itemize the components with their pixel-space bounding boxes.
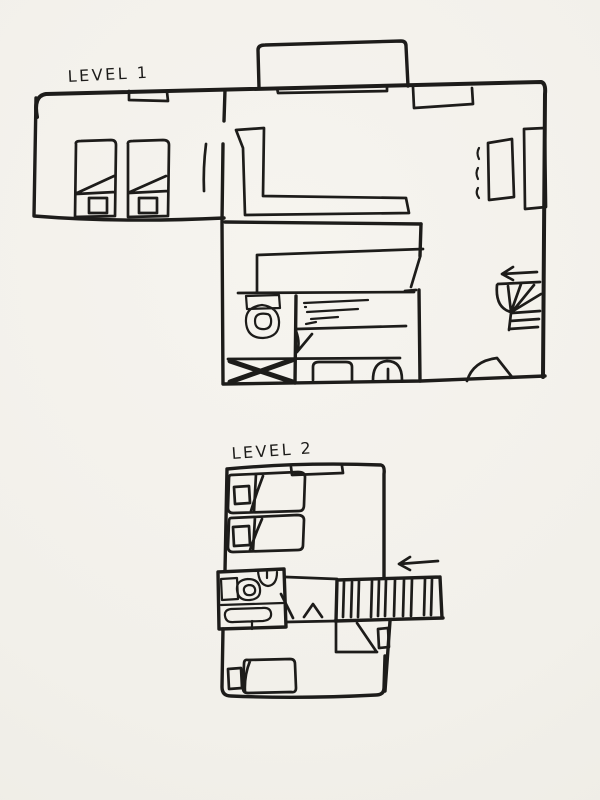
sketch-canvas: LEVEL 1	[0, 0, 600, 800]
stove-vent-lines	[304, 300, 368, 324]
bed-icon	[228, 515, 304, 552]
level1-kitchen-right-wall	[419, 224, 421, 381]
bench-icon	[313, 362, 352, 380]
stairs-door-swing	[336, 622, 377, 652]
bed-icon	[228, 472, 305, 513]
bathroom-counter	[221, 578, 238, 600]
sofa-icon	[236, 128, 409, 215]
floor-plan-sketch: LEVEL 1	[0, 0, 600, 800]
bay-window	[258, 41, 408, 88]
bathtub-icon	[221, 603, 283, 629]
level1-top-wall	[36, 82, 545, 377]
arrow-left-icon	[399, 557, 438, 570]
sink-icon	[237, 579, 260, 600]
level1-kitchen-top-wall	[225, 222, 421, 224]
level2-label: LEVEL 2	[231, 438, 314, 463]
kitchen-right-door-swing	[405, 257, 420, 291]
toilet-icon	[258, 571, 277, 586]
kitchen-door-swing	[296, 331, 312, 353]
bed-icon	[128, 140, 169, 217]
toilet-icon	[373, 361, 402, 380]
winder-stairs-icon	[497, 282, 541, 330]
sink-icon	[246, 295, 280, 338]
landing-walls	[286, 577, 337, 622]
stairs-treads	[343, 579, 432, 617]
dashed-door-marks	[477, 148, 480, 198]
level1-bedroom-door-leaf	[204, 144, 206, 191]
level2-plan: LEVEL 2	[218, 438, 443, 697]
level2-top-window	[291, 466, 343, 475]
crossed-out-box	[230, 360, 293, 382]
level1-kitchen-partition-wall	[295, 296, 296, 383]
level1-center-left-wall	[222, 90, 225, 383]
level1-plan: LEVEL 1	[34, 41, 546, 384]
bed-icon	[228, 659, 296, 693]
arrow-left-icon	[502, 267, 537, 280]
right-top-window	[413, 87, 473, 108]
level1-label: LEVEL 1	[67, 63, 150, 86]
cabinet-icon	[488, 139, 514, 200]
bed-icon	[75, 140, 116, 217]
corridor-line	[228, 358, 400, 359]
